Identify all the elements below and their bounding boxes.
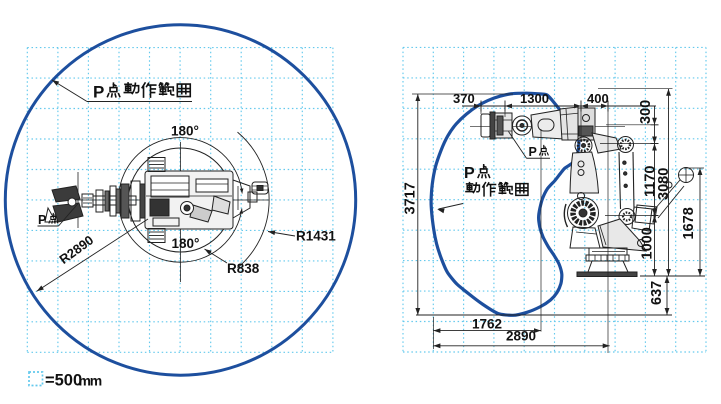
svg-text:300: 300 (638, 100, 654, 124)
svg-text:P: P (529, 145, 537, 159)
svg-text:2890: 2890 (506, 329, 536, 344)
svg-text:mm: mm (79, 373, 102, 389)
svg-text:180°: 180° (171, 124, 199, 139)
svg-text:1762: 1762 (472, 317, 502, 332)
svg-text:1000: 1000 (640, 227, 656, 259)
svg-text:R838: R838 (227, 261, 260, 276)
svg-text:3080: 3080 (656, 168, 672, 200)
svg-text:=500: =500 (45, 372, 82, 390)
svg-text:1300: 1300 (520, 91, 549, 106)
svg-text:400: 400 (587, 91, 609, 106)
svg-text:1678: 1678 (681, 207, 697, 239)
svg-text:370: 370 (453, 91, 475, 106)
svg-text:637: 637 (649, 281, 665, 305)
svg-text:P: P (464, 165, 475, 182)
svg-text:3717: 3717 (402, 182, 418, 214)
svg-text:P: P (38, 213, 46, 227)
svg-text:P: P (93, 83, 104, 102)
svg-text:R1431: R1431 (296, 229, 336, 244)
svg-text:180°: 180° (172, 236, 200, 251)
